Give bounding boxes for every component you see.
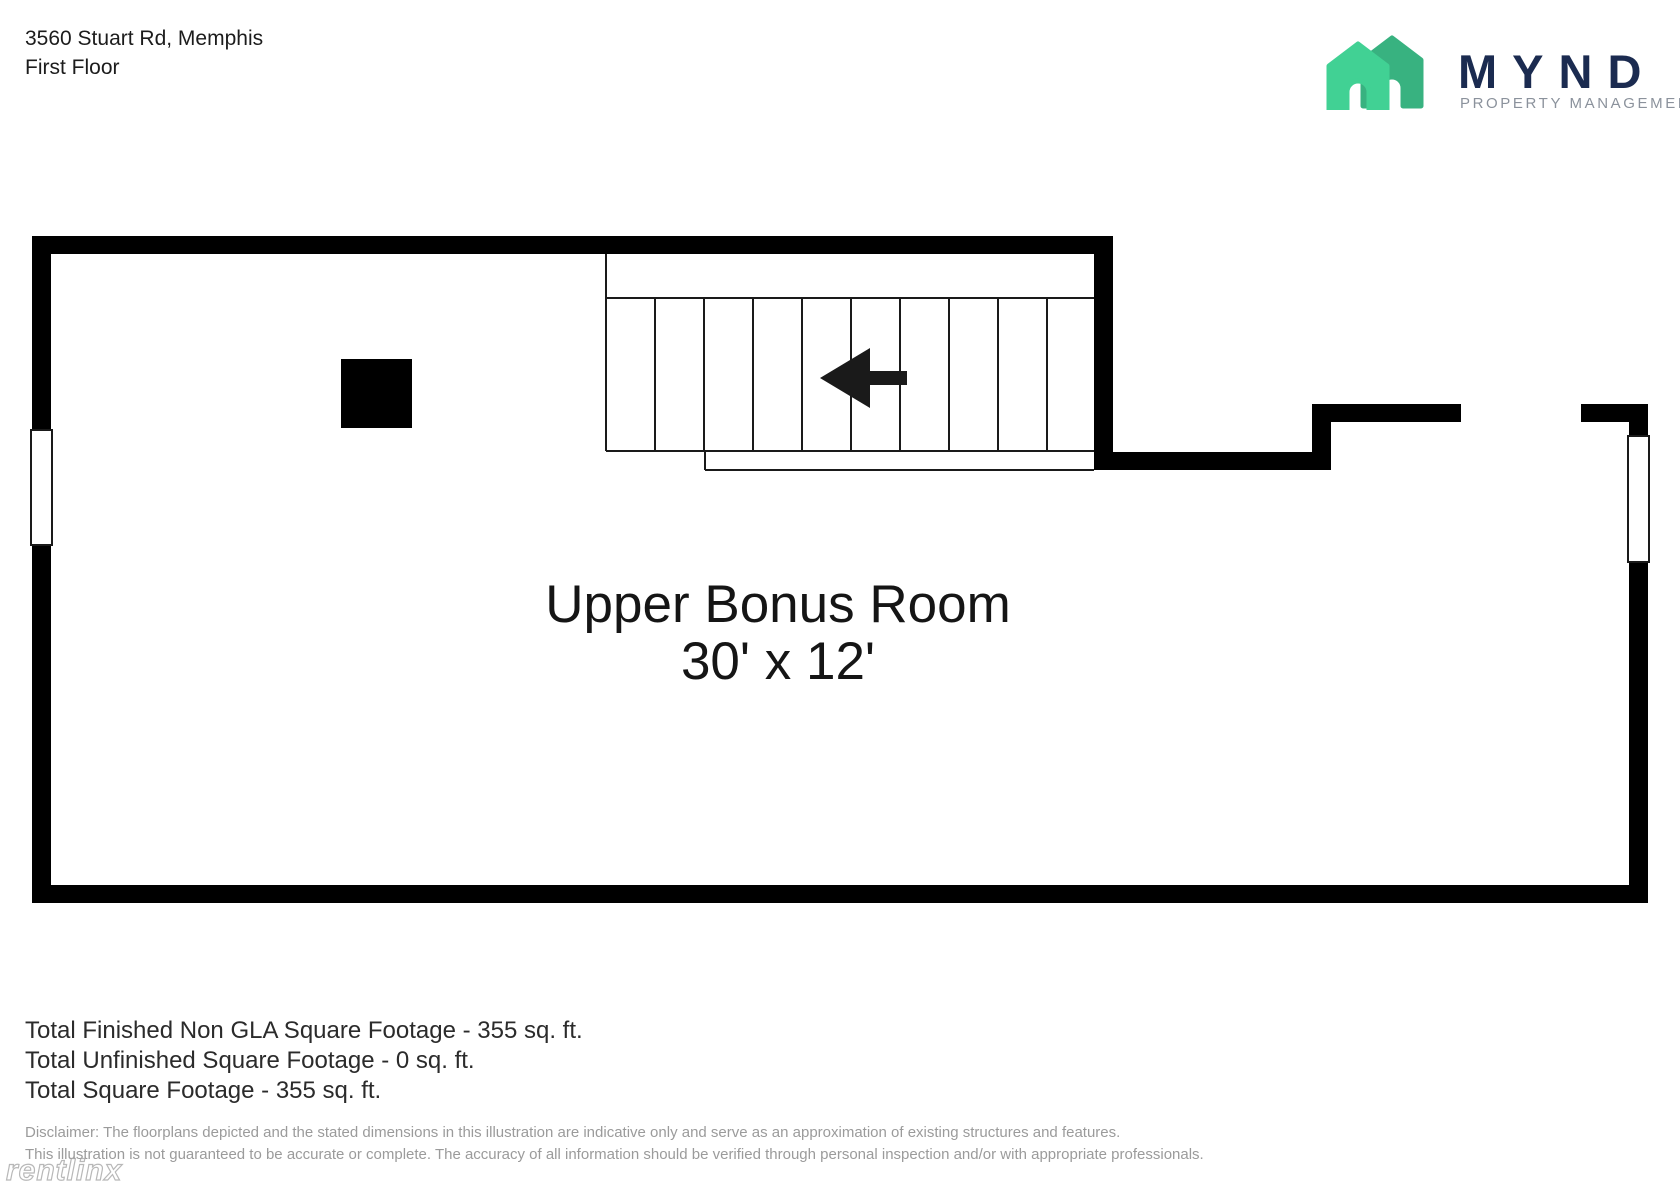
rentlinx-watermark: rentlinx [6, 1154, 122, 1188]
disclaimer-block: Disclaimer: The floorplans depicted and … [25, 1122, 1204, 1166]
stairs-direction-arrow-icon [820, 348, 907, 408]
wall-stairwell-right [1094, 236, 1113, 470]
window-left [31, 430, 52, 545]
disclaimer-line-1: Disclaimer: The floorplans depicted and … [25, 1122, 1204, 1144]
room-dimensions: 30' x 12' [378, 633, 1178, 690]
wall-under-stairs [1094, 452, 1331, 470]
total-finished-non-gla: Total Finished Non GLA Square Footage - … [25, 1016, 583, 1046]
window-right [1628, 436, 1649, 562]
wall-top [32, 236, 1113, 254]
chimney-square [341, 359, 412, 428]
wall-left [32, 236, 51, 903]
total-square-footage: Total Square Footage - 355 sq. ft. [25, 1076, 583, 1106]
room-name: Upper Bonus Room [378, 576, 1178, 633]
floorplan-page: 3560 Stuart Rd, Memphis First Floor MYND… [0, 0, 1680, 1188]
square-footage-totals: Total Finished Non GLA Square Footage - … [25, 1016, 583, 1106]
wall-upper-right [1312, 404, 1461, 422]
wall-bottom [32, 885, 1648, 903]
room-label-block: Upper Bonus Room 30' x 12' [378, 576, 1178, 690]
total-unfinished: Total Unfinished Square Footage - 0 sq. … [25, 1046, 583, 1076]
disclaimer-line-2: This illustration is not guaranteed to b… [25, 1144, 1204, 1166]
